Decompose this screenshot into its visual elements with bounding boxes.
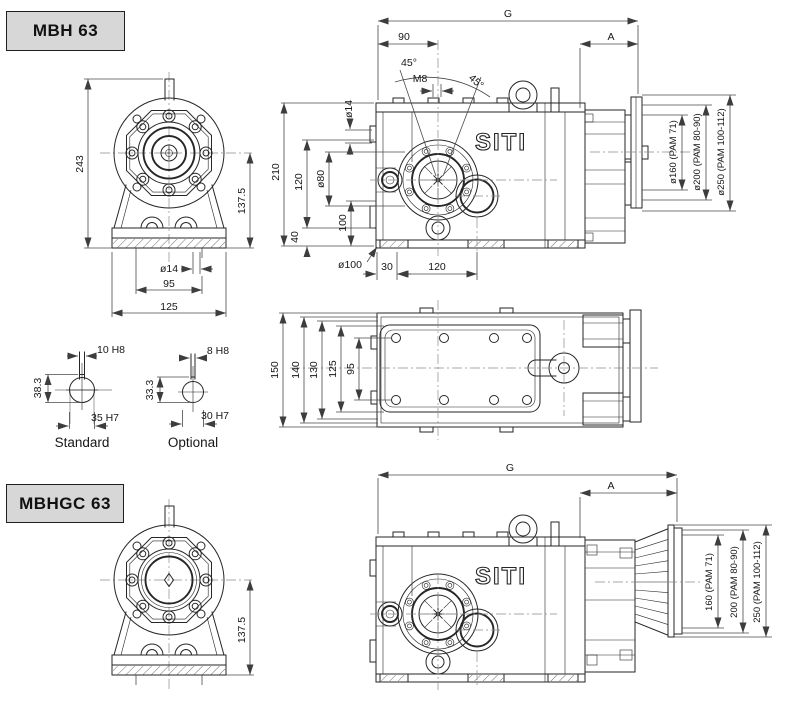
dim-text-125t: 125 xyxy=(327,360,339,378)
dim-bore-optional: 30 H7 xyxy=(169,410,229,427)
dim-pam-250: ø250 (PAM 100-112) xyxy=(642,95,736,211)
dim-text-g-gc: G xyxy=(506,462,514,474)
dim-motor-section: A xyxy=(580,31,638,108)
dim-text-o100: ø100 xyxy=(338,259,362,271)
dim-text-g: G xyxy=(504,8,512,20)
view-mbhgc-side: G A 160 (PAM 71) 200 (PAM 80-90) xyxy=(370,462,772,690)
dim-height-foot: 40 xyxy=(289,218,307,256)
dim-text-125: 125 xyxy=(160,301,178,313)
dim-text-30h7: 30 H7 xyxy=(201,410,229,422)
dim-plug-dia: ø14 xyxy=(343,100,372,155)
dim-foot-hole-dia: ø14 xyxy=(160,252,213,275)
dim-height-axis-gc: 137.5 xyxy=(226,580,254,675)
dim-text-pam160: ø160 (PAM 71) xyxy=(668,120,679,184)
dim-keyheight-standard: 38.3 xyxy=(32,375,82,403)
view-mbh-front: 243 137.5 ø14 95 xyxy=(74,72,254,317)
dim-boss-dia: ø100 xyxy=(338,247,377,271)
top-flange-plate xyxy=(630,310,641,422)
view-mbhgc-front: 137.5 xyxy=(100,499,254,689)
dim-text-150: 150 xyxy=(269,361,281,379)
dim-pam-160-gc: 160 (PAM 71) xyxy=(682,535,724,628)
datasheet-page: MBH 63 MBHGC 63 xyxy=(0,0,788,706)
pam-flange-plate-gc xyxy=(668,525,682,637)
edge-tabs xyxy=(371,308,513,432)
dim-text-35h7: 35 H7 xyxy=(91,412,119,424)
dim-text-38-3: 38.3 xyxy=(32,378,44,399)
dim-text-pam250-gc: 250 (PAM 100-112) xyxy=(752,541,763,623)
base-bolt-holes xyxy=(392,334,532,405)
dim-text-137-5: 137.5 xyxy=(236,188,248,214)
dim-text-40: 40 xyxy=(289,231,301,243)
dim-keyway-standard: 10 H8 xyxy=(67,344,125,356)
dim-text-210: 210 xyxy=(270,163,282,181)
dim-keyheight-optional: 33.3 xyxy=(144,377,193,403)
dim-text-pam200-gc: 200 (PAM 80-90) xyxy=(729,546,740,618)
dim-overall-length: G xyxy=(378,8,638,100)
keyhole-slot xyxy=(528,353,579,383)
dim-input-flange-dia: ø80 xyxy=(315,152,405,206)
dim-width-body: 130 xyxy=(308,321,378,419)
dim-text-120: 120 xyxy=(293,173,305,191)
dim-text-30: 30 xyxy=(381,261,393,273)
dim-text-a-gc: A xyxy=(607,480,614,492)
dim-pam-200-gc: 200 (PAM 80-90) xyxy=(682,530,749,633)
dim-height-axis: 137.5 xyxy=(226,153,254,248)
dim-text-90: 90 xyxy=(398,31,410,43)
dim-keyway-optional: 8 H8 xyxy=(179,345,229,358)
dim-text-pam250: ø250 (PAM 100-112) xyxy=(716,108,727,195)
dim-text-120b: 120 xyxy=(428,261,446,273)
dim-height-upper: 120 xyxy=(293,140,374,228)
dim-text-pam160-gc: 160 (PAM 71) xyxy=(704,553,715,611)
dim-text-33-3: 33.3 xyxy=(144,380,156,401)
detail-bore-standard: 10 H8 38.3 35 H7 Standard xyxy=(32,344,125,450)
dim-foot-spacing-side: 120 xyxy=(397,252,477,280)
dim-width-total: 150 xyxy=(269,313,378,427)
dim-text-a: A xyxy=(607,31,614,43)
dim-input-offset: 90 xyxy=(378,31,438,138)
dim-text-8h8: 8 H8 xyxy=(207,345,229,357)
dim-text-o80: ø80 xyxy=(315,170,327,188)
dim-motor-section-gc: A xyxy=(580,480,677,538)
technical-drawing: SITI 243 xyxy=(0,0,788,706)
dim-text-pam200: ø200 (PAM 80-90) xyxy=(692,113,703,190)
dim-text-95: 95 xyxy=(163,278,175,290)
dim-text-243: 243 xyxy=(74,155,86,173)
motor-adapter xyxy=(585,110,633,243)
dim-text-137-5-gc: 137.5 xyxy=(236,617,248,643)
dim-text-95t: 95 xyxy=(345,363,357,375)
bell-adapter-blocks xyxy=(585,540,635,672)
dim-foot-offset: 30 xyxy=(363,252,411,280)
dim-pam-160: ø160 (PAM 71) xyxy=(642,115,688,190)
dim-pam-250-gc: 250 (PAM 100-112) xyxy=(674,525,772,637)
view-top: 150 140 130 125 xyxy=(269,300,658,440)
dim-text-130: 130 xyxy=(308,361,320,379)
dim-bore-standard: 35 H7 xyxy=(56,412,119,429)
dim-text-10h8: 10 H8 xyxy=(97,344,125,356)
dim-text-45-left: 45° xyxy=(401,57,417,69)
pam-flange-plate xyxy=(631,97,648,208)
view-mbh-side: G 90 A 45° 45° M8 xyxy=(270,8,736,280)
dim-text-o14-side: ø14 xyxy=(343,100,355,118)
caption-optional: Optional xyxy=(168,435,218,450)
dim-text-140: 140 xyxy=(290,361,302,379)
dim-text-m8: M8 xyxy=(413,73,428,85)
detail-bore-optional: 8 H8 33.3 30 H7 Optional xyxy=(144,345,229,450)
dim-text-100: 100 xyxy=(337,214,349,232)
dim-text-45-right: 45° xyxy=(466,72,486,92)
dim-text-o14: ø14 xyxy=(160,263,178,275)
dim-tap-angles: 45° 45° M8 xyxy=(395,57,490,176)
caption-standard: Standard xyxy=(55,435,110,450)
